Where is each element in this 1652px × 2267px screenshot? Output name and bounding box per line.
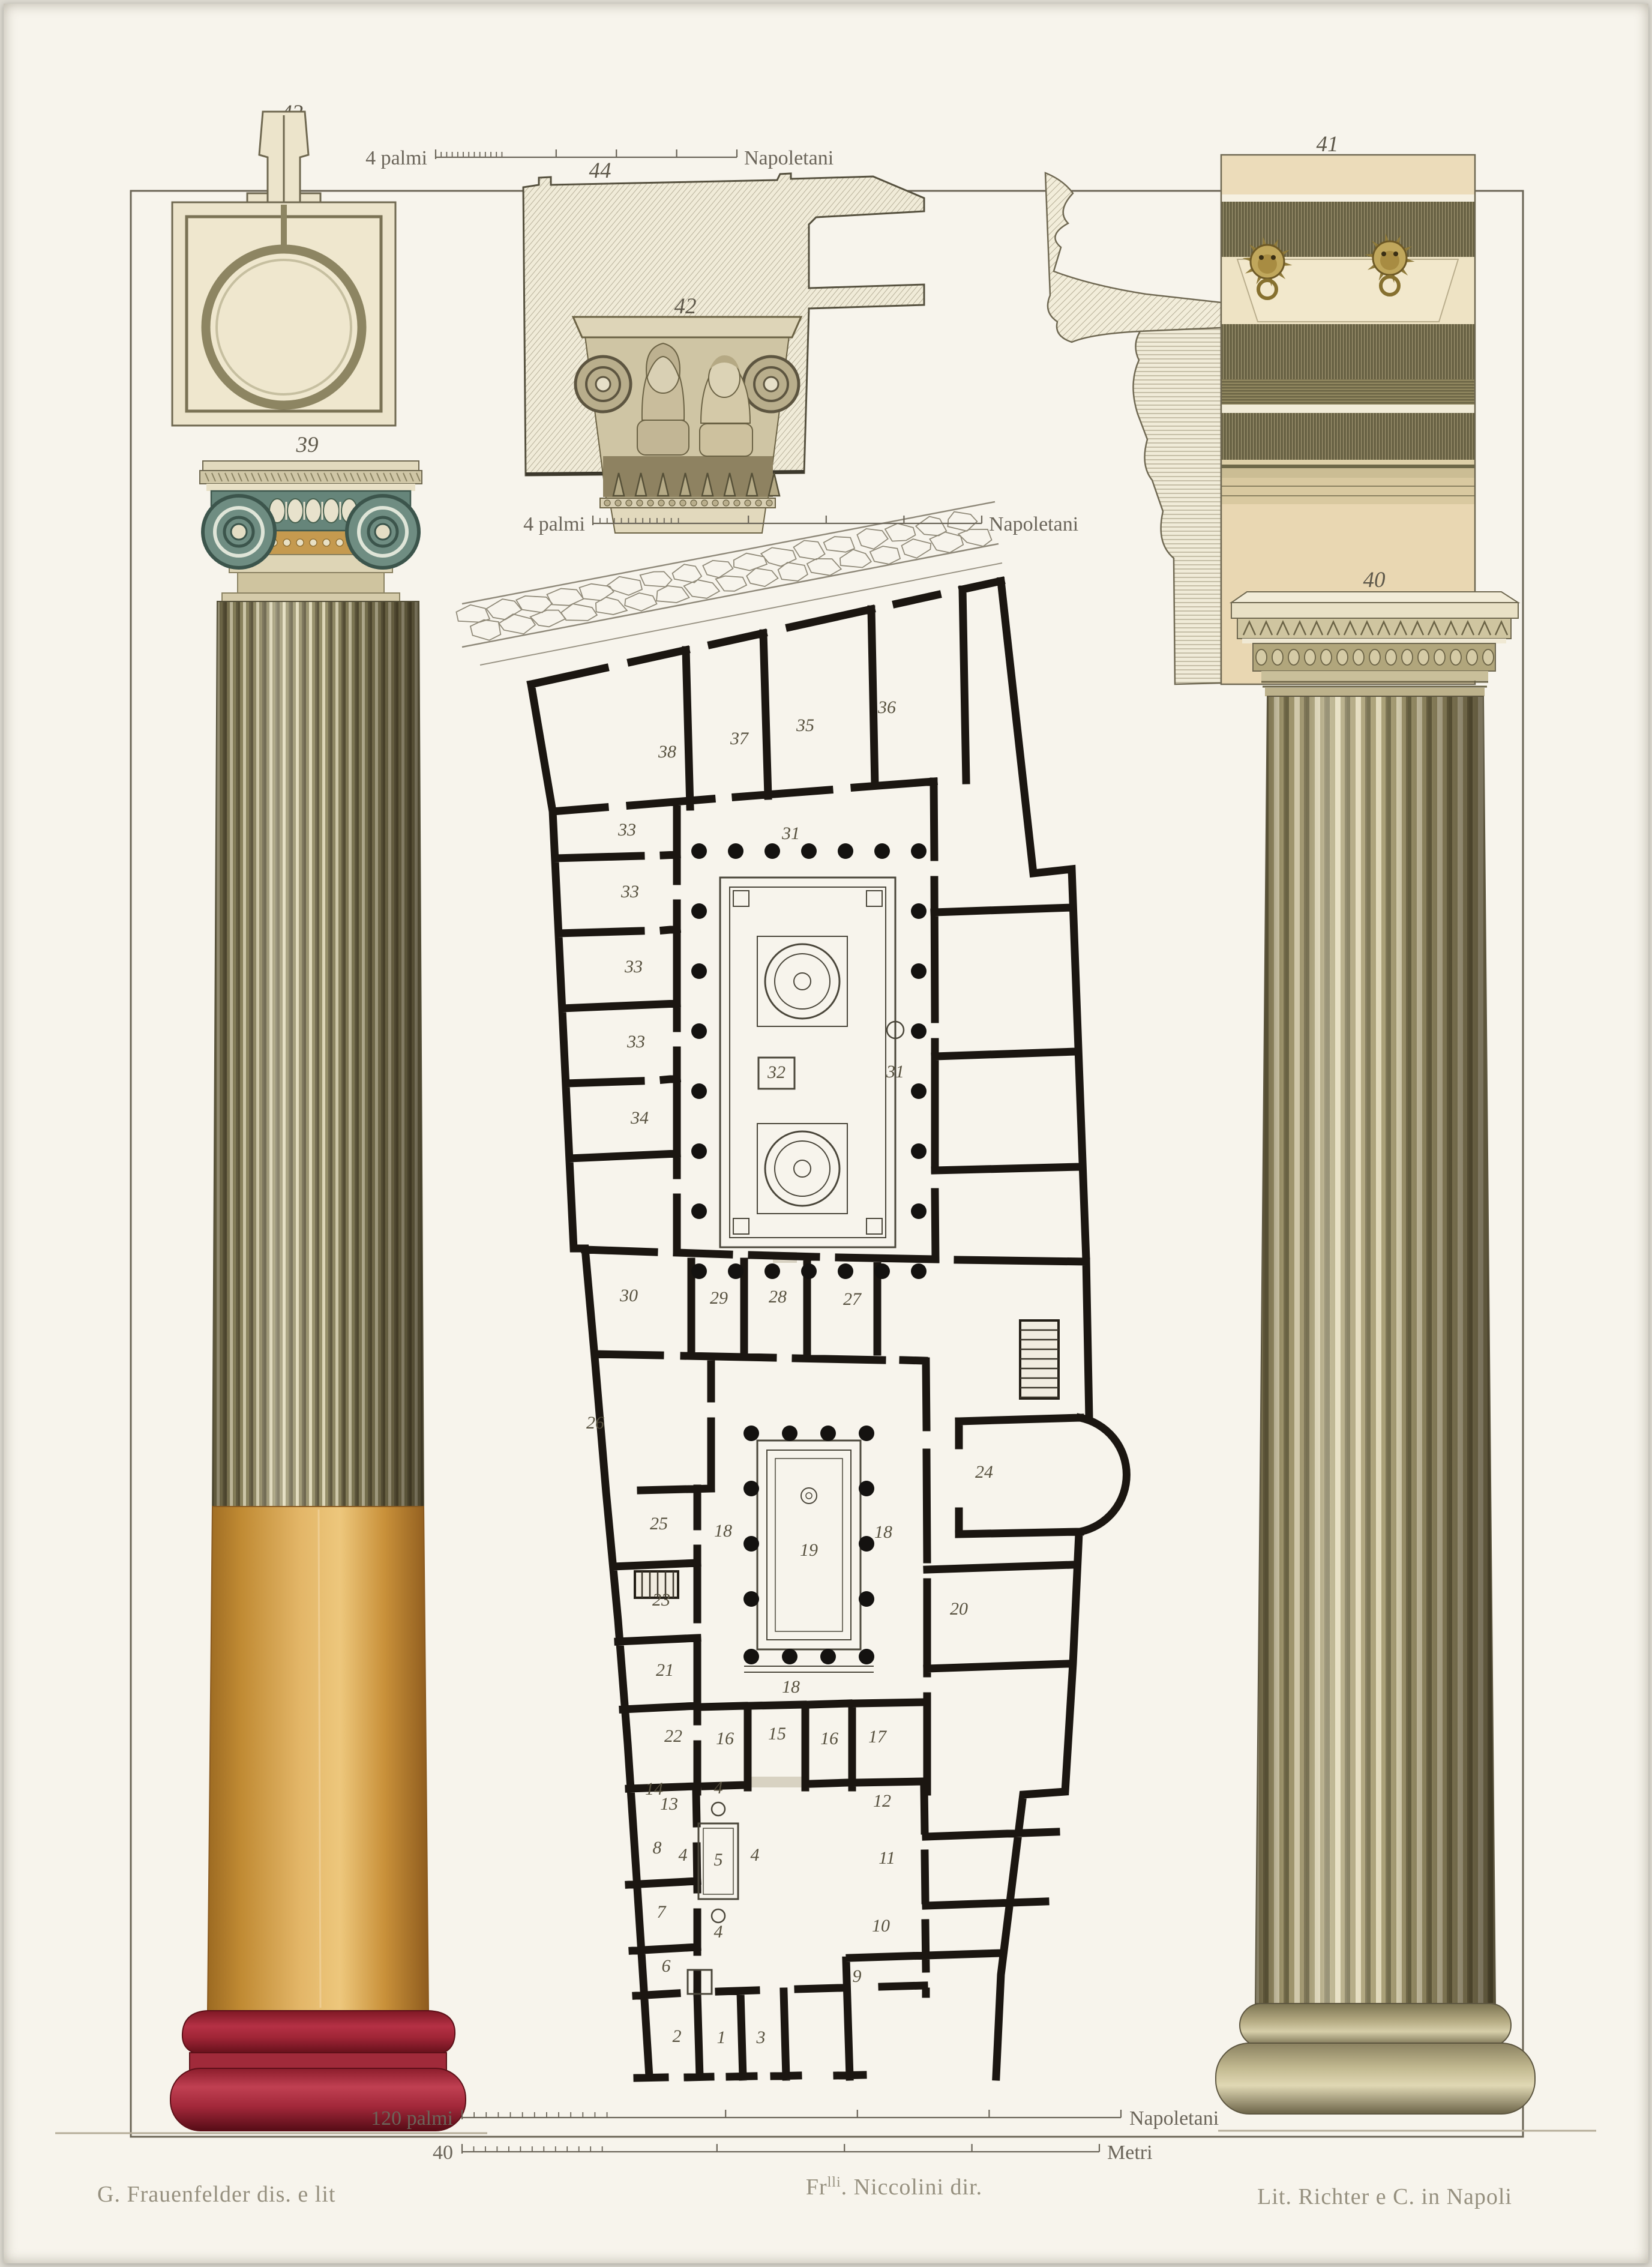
scale-label: Napoletani — [744, 147, 834, 169]
room-label-26: 26 — [586, 1413, 604, 1433]
egg-and-dart — [269, 499, 357, 523]
room-label-35: 35 — [796, 715, 814, 735]
credit-director: Frlli. Niccolini dir. — [806, 2175, 982, 2200]
room-label-33: 33 — [617, 820, 636, 840]
room-label-4: 4 — [679, 1845, 688, 1865]
room-label-4: 4 — [751, 1845, 760, 1865]
ionic-capital — [200, 461, 422, 601]
room-label-27: 27 — [843, 1289, 862, 1309]
room-label-13: 13 — [660, 1794, 678, 1814]
room-label-11: 11 — [879, 1848, 895, 1868]
room-label-25: 25 — [650, 1514, 668, 1534]
room-label-30: 30 — [619, 1286, 638, 1305]
scale-bar-palmi: 120 palmi Napoletani — [371, 2107, 1219, 2130]
floor-plan: 3837353633333333343131323029282726241819… — [456, 502, 1126, 2078]
room-label-7: 7 — [657, 1902, 667, 1922]
figure-40-number: 40 — [1363, 568, 1386, 592]
room-label-22: 22 — [664, 1726, 682, 1746]
figure-43-capital-plan: 43 — [172, 101, 395, 426]
room-label-15: 15 — [768, 1724, 786, 1744]
figure-42-number: 42 — [674, 294, 697, 319]
figure-44-number: 44 — [589, 158, 611, 183]
room-label-29: 29 — [710, 1288, 728, 1308]
lithograph-plate: 43 44 42 — [0, 0, 1652, 2267]
column-base — [1216, 2004, 1535, 2114]
figure-40-doric-column: 40 — [1216, 568, 1596, 2131]
room-label-19: 19 — [800, 1540, 818, 1560]
scale-label: 120 palmi — [371, 2107, 453, 2130]
scale-label: 4 palmi — [523, 513, 585, 535]
atrium-impluvium — [688, 1802, 738, 1994]
room-label-1: 1 — [717, 2028, 726, 2047]
plate-svg: 43 44 42 — [0, 0, 1652, 2267]
room-label-6: 6 — [662, 1956, 671, 1976]
room-label-33: 33 — [626, 1032, 645, 1052]
room-label-18: 18 — [782, 1677, 800, 1697]
room-label-36: 36 — [877, 697, 896, 717]
room-label-28: 28 — [769, 1287, 787, 1307]
room-label-4: 4 — [714, 1922, 723, 1942]
figure-42-figured-capital: 42 — [573, 294, 801, 533]
threshold — [750, 1777, 805, 1787]
room-label-5: 5 — [714, 1850, 723, 1870]
room-label-2: 2 — [673, 2026, 682, 2046]
doric-capital — [1231, 592, 1518, 696]
room-label-20: 20 — [950, 1599, 968, 1619]
room-label-16: 16 — [820, 1729, 838, 1748]
room-label-16: 16 — [716, 1729, 734, 1748]
room-label-12: 12 — [873, 1791, 891, 1811]
credit-lithographer: Lit. Richter e C. in Napoli — [1257, 2184, 1512, 2209]
scale-label: Metri — [1107, 2142, 1153, 2164]
room-label-34: 34 — [630, 1108, 649, 1128]
room-label-24: 24 — [975, 1462, 993, 1482]
room-label-32: 32 — [767, 1062, 785, 1082]
upper-peristyle-pool — [720, 878, 904, 1247]
room-label-4: 4 — [714, 1778, 723, 1798]
wall-section-profile — [1133, 328, 1221, 684]
scale-bar-middle: 4 palmi Napoletani — [523, 513, 1078, 535]
room-label-38: 38 — [658, 742, 676, 762]
scale-label: 4 palmi — [365, 147, 427, 169]
room-label-37: 37 — [730, 729, 749, 748]
room-label-9: 9 — [853, 1966, 862, 1986]
cornice-section-profile — [1045, 173, 1221, 342]
room-label-17: 17 — [868, 1727, 888, 1747]
room-label-31: 31 — [886, 1062, 904, 1082]
room-label-33: 33 — [620, 882, 639, 902]
scale-label: Napoletani — [1129, 2107, 1219, 2130]
room-label-33: 33 — [624, 957, 643, 977]
scale-bar-metri: 40 Metri — [433, 2142, 1153, 2164]
figure-39-number: 39 — [296, 433, 319, 457]
scale-label: 40 — [433, 2142, 453, 2164]
room-label-31: 31 — [781, 823, 800, 843]
room-label-23: 23 — [652, 1590, 670, 1610]
room-label-18: 18 — [714, 1521, 732, 1541]
figure-39-ionic-column: 39 — [55, 433, 487, 2133]
scale-label: Napoletani — [989, 513, 1078, 535]
room-label-3: 3 — [756, 2028, 766, 2047]
credit-draughtsman: G. Frauenfelder dis. e lit — [97, 2182, 335, 2207]
room-label-21: 21 — [656, 1660, 674, 1680]
sidewalk-line — [480, 563, 1002, 665]
room-label-10: 10 — [872, 1916, 890, 1936]
egg-band — [1256, 649, 1494, 665]
room-label-18: 18 — [874, 1522, 892, 1542]
figure-41-number: 41 — [1317, 132, 1339, 157]
room-label-8: 8 — [653, 1838, 662, 1858]
